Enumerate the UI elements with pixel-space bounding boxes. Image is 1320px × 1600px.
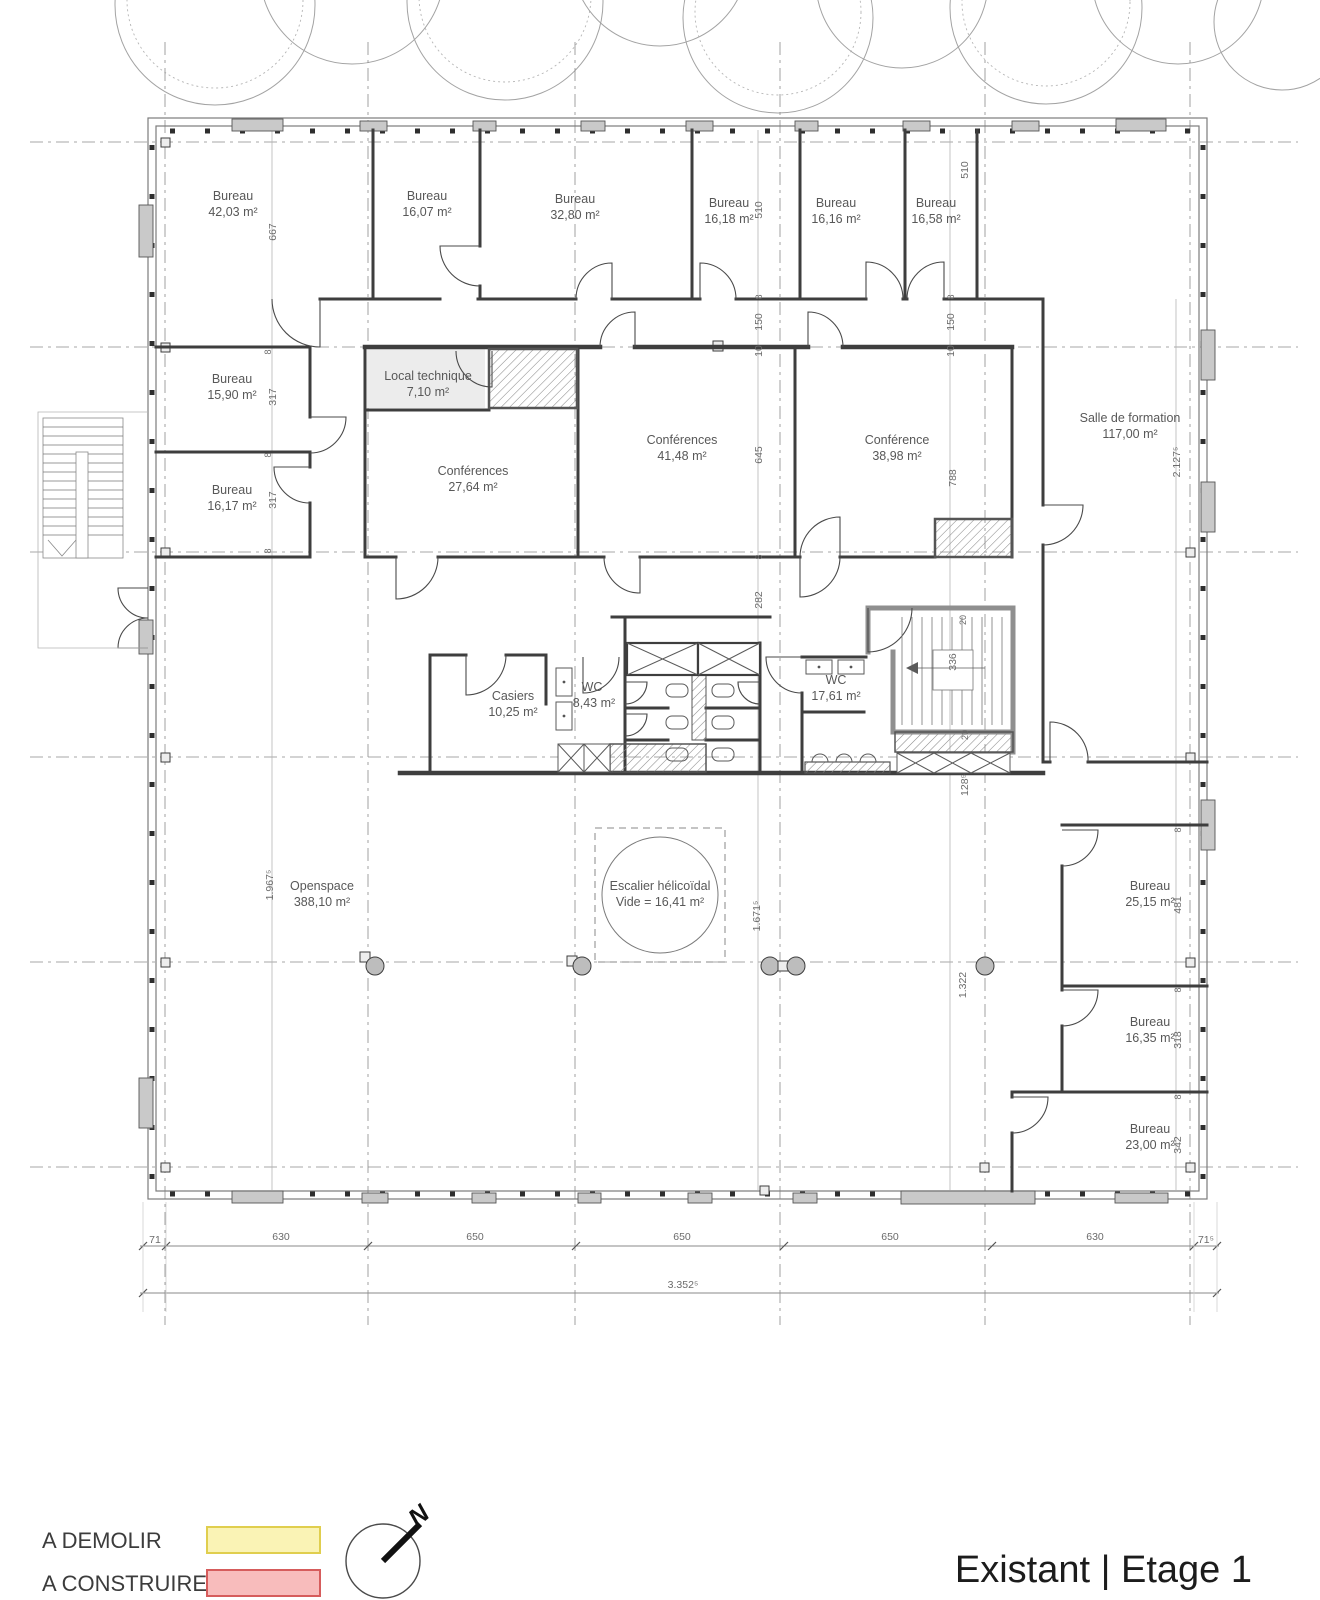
door-icon <box>1050 722 1088 762</box>
urinal-icons <box>812 754 876 762</box>
dim-label: 8 <box>1173 987 1183 992</box>
dim-label: 317 <box>267 491 279 509</box>
room-area: 16,07 m² <box>402 205 451 219</box>
dim-label-total: 3.352⁵ <box>668 1279 699 1291</box>
room-label: Bureau <box>709 196 749 210</box>
room-area: Vide = 16,41 m² <box>616 895 704 909</box>
door-icon <box>868 608 912 652</box>
room-label: Conférences <box>647 433 718 447</box>
room-area: 25,15 m² <box>1125 895 1174 909</box>
room-label: Conférences <box>438 464 509 478</box>
door-icon <box>738 682 760 704</box>
column-icon <box>360 952 384 975</box>
room-label: WC <box>826 673 847 687</box>
room-area: 16,58 m² <box>911 212 960 226</box>
room-label: Bureau <box>407 189 447 203</box>
dim-label: 1.967⁵ <box>264 870 276 901</box>
door-icon <box>625 714 647 736</box>
room-label: Casiers <box>492 689 534 703</box>
tree-icon <box>572 0 748 46</box>
room-area: 41,48 m² <box>657 449 706 463</box>
room-label: Local technique <box>384 369 472 383</box>
room-label: Bureau <box>1130 1015 1170 1029</box>
room-area: 16,18 m² <box>704 212 753 226</box>
dim-label: 650 <box>466 1231 484 1243</box>
dim-label: 20 <box>958 615 968 625</box>
dim-label: 630 <box>272 1231 290 1243</box>
dim-label: 510 <box>959 161 971 179</box>
room-label: Conférence <box>865 433 930 447</box>
room-area: 7,10 m² <box>407 385 449 399</box>
north-label: N <box>403 1499 436 1533</box>
door-icon <box>1043 505 1083 545</box>
hatched-floor <box>895 732 1013 752</box>
room-label: Bureau <box>555 192 595 206</box>
dim-label: 128⁵ <box>959 774 971 796</box>
door-icon <box>800 517 840 557</box>
room-label: Bureau <box>1130 1122 1170 1136</box>
hatched-duct <box>692 675 706 740</box>
door-icon <box>274 467 310 503</box>
legend-label-construct: A CONSTRUIRE <box>42 1571 207 1596</box>
dim-label: 336 <box>947 653 959 671</box>
room-area: 388,10 m² <box>294 895 350 909</box>
room-area: 16,16 m² <box>811 212 860 226</box>
room-label: Escalier hélicoïdal <box>610 879 711 893</box>
room-area: 17,61 m² <box>811 689 860 703</box>
room-area: 15,90 m² <box>207 388 256 402</box>
dim-label: 1.322 <box>957 972 969 998</box>
dim-label: 8 <box>946 294 956 299</box>
floor-plan-sheet: Bureau 42,03 m² Bureau 16,07 m² Bureau 3… <box>0 0 1320 1600</box>
room-area: 42,03 m² <box>208 205 257 219</box>
tree-icon <box>127 0 303 88</box>
room-area: 16,35 m² <box>1125 1031 1174 1045</box>
fixtures <box>38 412 1002 962</box>
room-label: Bureau <box>212 483 252 497</box>
sheet-title: Existant | Etage 1 <box>955 1549 1252 1591</box>
door-icon <box>576 263 612 299</box>
dim-label: 10 <box>753 345 765 357</box>
dim-label: 150 <box>945 313 957 331</box>
dim-label: 150 <box>753 313 765 331</box>
door-icon <box>766 657 802 693</box>
room-label: Bureau <box>213 189 253 203</box>
hatched-floor <box>610 744 706 772</box>
dim-label: 318 <box>1172 1031 1184 1049</box>
tree-icon <box>115 0 315 105</box>
tree-icon <box>260 0 444 64</box>
dim-label: 8 <box>1173 1094 1183 1099</box>
room-area: 8,43 m² <box>573 696 615 710</box>
room-label: WC <box>582 680 603 694</box>
door-icon <box>808 312 843 347</box>
door-icon <box>1062 830 1098 866</box>
legend: A DEMOLIR A CONSTRUIRE <box>42 1527 320 1596</box>
dim-label: 8 <box>1173 827 1183 832</box>
room-area: 10,25 m² <box>488 705 537 719</box>
legend-label-demolish: A DEMOLIR <box>42 1528 162 1553</box>
door-icon <box>866 262 903 299</box>
dim-label: 282 <box>753 591 765 609</box>
tree-icon <box>950 0 1142 104</box>
dimension-labels: 667 317 317 8 8 8 510 510 8 150 10 8 150… <box>149 161 1214 1291</box>
tree-icon <box>683 0 873 113</box>
room-area: 27,64 m² <box>448 480 497 494</box>
room-area: 32,80 m² <box>550 208 599 222</box>
door-icon <box>907 262 944 299</box>
column-icon <box>761 957 805 975</box>
room-area: 117,00 m² <box>1102 427 1157 441</box>
dim-label: 481 <box>1172 896 1184 914</box>
dim-label: 8 <box>263 548 273 553</box>
tree-icon <box>419 0 591 82</box>
room-area: 16,17 m² <box>207 499 256 513</box>
x-shaft-icon <box>558 744 610 772</box>
dim-label: 1.671⁵ <box>751 901 763 932</box>
door-icon <box>272 299 320 347</box>
dim-label: 650 <box>673 1231 691 1243</box>
extension-lines <box>143 1202 1217 1312</box>
x-shaft-icon <box>897 753 1010 773</box>
legend-swatch-demolish <box>207 1527 320 1553</box>
dim-label: 317 <box>267 388 279 406</box>
hatched-shaft <box>935 519 1012 557</box>
door-icon <box>604 557 640 593</box>
hatched-shaft <box>489 349 577 408</box>
interior-columns <box>360 952 994 975</box>
dim-label: 650 <box>881 1231 899 1243</box>
door-icon <box>440 246 480 286</box>
room-area: 38,98 m² <box>872 449 921 463</box>
wall <box>373 130 977 299</box>
door-icon <box>800 557 840 597</box>
dim-label: 10 <box>945 345 957 357</box>
dim-label: 630 <box>1086 1231 1104 1243</box>
dim-label: 8 <box>754 294 764 299</box>
column-icon <box>567 956 591 975</box>
room-label: Bureau <box>816 196 856 210</box>
dim-label: 8 <box>754 554 764 559</box>
door-icon <box>310 417 346 453</box>
room-area: 23,00 m² <box>1125 1138 1174 1152</box>
column-icon <box>976 957 994 975</box>
door-icon <box>600 312 635 347</box>
dim-label: 71 <box>149 1234 161 1246</box>
tree-icon <box>1092 0 1264 64</box>
tree-icon <box>407 0 603 100</box>
dim-label: 667 <box>267 223 279 241</box>
door-icon <box>700 263 736 299</box>
dim-label: 342 <box>1172 1136 1184 1154</box>
dim-label: 8 <box>263 452 273 457</box>
room-label: Bureau <box>1130 879 1170 893</box>
door-icon <box>625 682 647 704</box>
dim-label: 20 <box>960 730 970 740</box>
room-label: Bureau <box>212 372 252 386</box>
dim-label: 71⁵ <box>1198 1234 1214 1246</box>
room-label: Salle de formation <box>1080 411 1181 425</box>
tree-canopies <box>115 0 1320 113</box>
x-shaft-icon <box>627 643 698 675</box>
door-icon <box>396 557 438 599</box>
legend-swatch-construct <box>207 1570 320 1596</box>
dim-label: 510 <box>753 201 765 219</box>
north-compass: N <box>346 1499 435 1598</box>
dim-label: 8 <box>263 349 273 354</box>
dimension-lines-bottom <box>139 1202 1221 1312</box>
structural-grid <box>30 42 1298 1325</box>
room-label: Bureau <box>916 196 956 210</box>
door-icon <box>1012 1097 1048 1133</box>
tree-icon <box>962 0 1130 86</box>
x-shaft-icon <box>698 643 760 675</box>
door-icon <box>118 588 148 618</box>
door-icon <box>1062 990 1098 1026</box>
hatched-floor <box>805 762 890 773</box>
dim-label: 2.127⁵ <box>1171 447 1183 478</box>
room-label: Openspace <box>290 879 354 893</box>
dim-label: 788 <box>947 469 959 487</box>
tree-icon <box>1214 0 1320 90</box>
tree-icon <box>695 0 861 95</box>
dim-label: 645 <box>753 446 765 464</box>
floor-plan-drawing: Bureau 42,03 m² Bureau 16,07 m² Bureau 3… <box>0 0 1320 1600</box>
